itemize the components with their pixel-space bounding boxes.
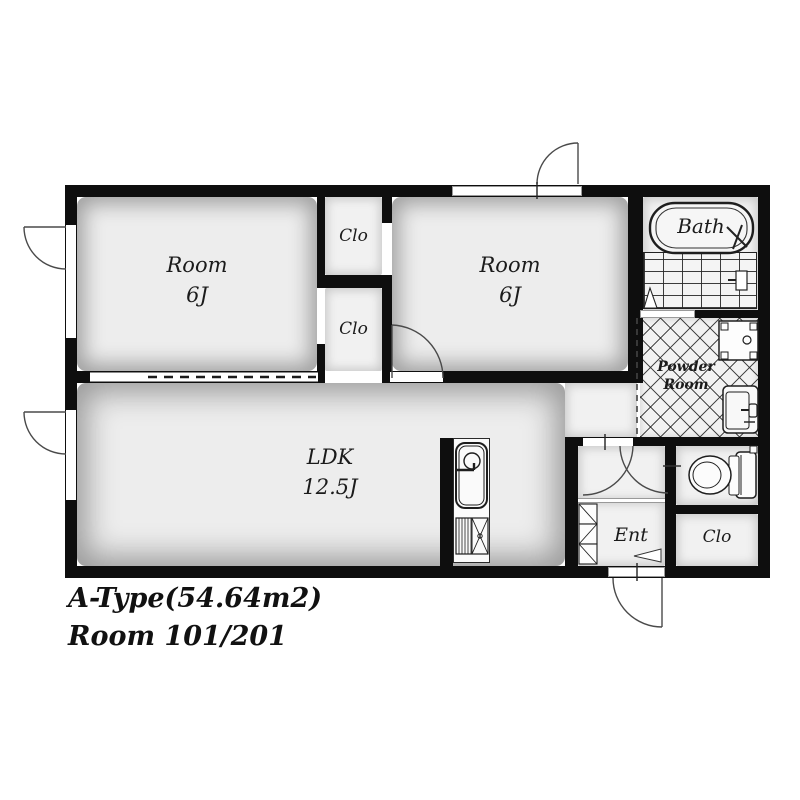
hallway-door-opening — [583, 438, 633, 446]
window-left-top-opening — [66, 225, 76, 338]
ldk-name: LDK — [200, 442, 460, 472]
wall-segment — [565, 437, 578, 566]
room-right-size: 6J — [392, 280, 628, 310]
closet-bottom-label: Clo — [325, 320, 382, 338]
ldk-size: 12.5J — [200, 472, 460, 502]
room-right-door-opening — [390, 372, 443, 382]
closet-top-opening — [382, 223, 392, 275]
entrance-label: Ent — [597, 525, 665, 545]
bath-label: Bath — [648, 215, 754, 237]
powder-line1: Powder — [640, 358, 732, 376]
closet-top-label: Clo — [325, 227, 382, 245]
wall-segment — [676, 505, 758, 514]
room-left-sliding-opening — [90, 372, 318, 382]
plan-title: A-Type(54.64m2) Room 101/201 — [68, 580, 322, 656]
wall-segment — [325, 275, 382, 288]
wall-segment — [695, 310, 758, 318]
top-door-window-opening — [452, 186, 582, 196]
toilet-floor — [676, 446, 758, 505]
window-left-top-icon — [24, 227, 66, 269]
room-right-label: Room 6J — [392, 250, 628, 310]
floor-plan: Room 6J Clo Clo Room 6J Bath Powder Room… — [0, 0, 800, 800]
window-left-bottom-icon — [24, 412, 66, 454]
room-right-name: Room — [392, 250, 628, 280]
powder-room-label: Powder Room — [640, 358, 732, 394]
hallway-floor — [578, 446, 665, 501]
wall-segment — [665, 446, 676, 505]
entrance-step — [578, 498, 665, 503]
room-left-label: Room 6J — [77, 250, 317, 310]
entrance-door-opening — [608, 567, 665, 577]
plan-title-line2: Room 101/201 — [68, 618, 322, 656]
bath-door-opening — [640, 310, 695, 318]
room-left-size: 6J — [77, 280, 317, 310]
wall-segment — [65, 185, 770, 197]
wall-segment — [758, 185, 770, 578]
ldk-extension-floor — [565, 383, 637, 437]
bath-tile-area — [643, 252, 757, 309]
powder-line2: Room — [640, 376, 732, 394]
room-left-name: Room — [77, 250, 317, 280]
wall-segment — [317, 197, 325, 371]
plan-title-line1: A-Type(54.64m2) — [68, 580, 322, 618]
wall-segment — [665, 505, 676, 566]
window-left-bottom-opening — [66, 410, 76, 500]
ldk-label: LDK 12.5J — [200, 442, 460, 502]
closet-entry-label: Clo — [676, 528, 758, 546]
closet-bottom-opening — [317, 288, 325, 344]
wall-segment — [628, 197, 643, 383]
